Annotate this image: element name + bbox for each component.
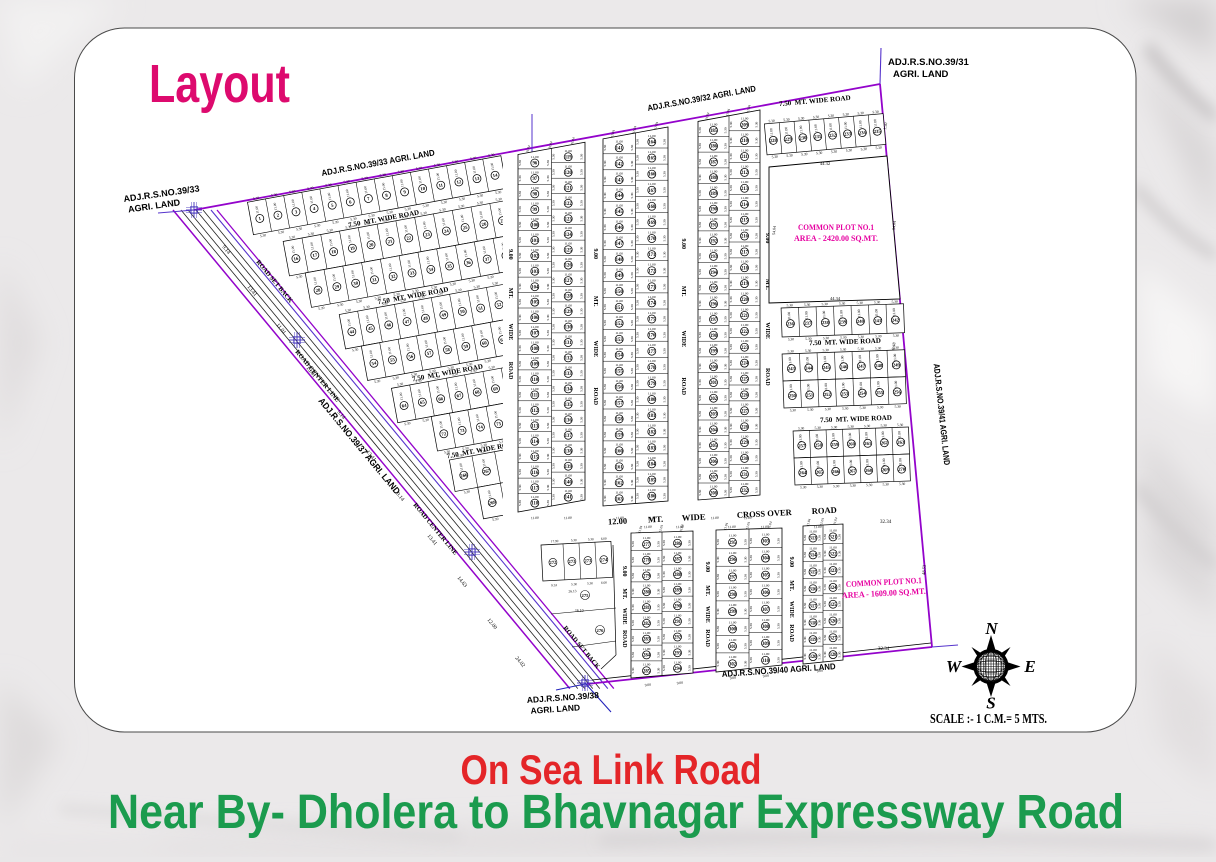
svg-text:5.30: 5.30 [656, 667, 660, 673]
svg-text:5.30: 5.30 [630, 336, 634, 342]
svg-text:5.30: 5.30 [546, 438, 550, 444]
svg-text:5.30: 5.30 [603, 448, 607, 454]
svg-text:5.30: 5.30 [858, 347, 865, 351]
svg-text:5.30: 5.30 [687, 587, 691, 593]
svg-text:108: 108 [531, 347, 539, 352]
svg-text:5.30: 5.30 [636, 203, 640, 209]
svg-text:5.30: 5.30 [603, 368, 607, 374]
svg-text:5.30: 5.30 [636, 316, 640, 322]
svg-text:136: 136 [565, 418, 573, 423]
svg-text:176: 176 [648, 334, 656, 339]
svg-text:5.30: 5.30 [579, 169, 583, 175]
svg-text:226: 226 [741, 394, 749, 399]
svg-text:5.30: 5.30 [729, 265, 733, 271]
svg-text:5.30: 5.30 [631, 541, 635, 547]
svg-text:5.30: 5.30 [579, 339, 583, 345]
svg-text:11.00: 11.00 [710, 296, 718, 300]
svg-text:11.00: 11.00 [564, 489, 572, 493]
svg-text:11.00: 11.00 [859, 382, 863, 390]
svg-text:ROAD: ROAD [507, 362, 513, 380]
svg-text:154: 154 [616, 354, 624, 359]
svg-text:WIDE: WIDE [592, 340, 598, 357]
svg-text:5.30: 5.30 [552, 277, 556, 283]
svg-text:5.30: 5.30 [579, 478, 583, 484]
svg-text:11.00: 11.00 [648, 343, 656, 347]
svg-text:5.30: 5.30 [698, 458, 702, 464]
svg-text:5.30: 5.30 [630, 240, 634, 246]
svg-text:6.00: 6.00 [601, 581, 607, 585]
svg-text:5.30: 5.30 [837, 534, 841, 540]
svg-text:5.30: 5.30 [662, 155, 666, 161]
svg-text:11.00: 11.00 [674, 645, 682, 649]
svg-text:5.30: 5.30 [662, 219, 666, 225]
svg-text:5.30: 5.30 [546, 407, 550, 413]
svg-text:11.00: 11.00 [804, 311, 808, 319]
svg-text:11.00: 11.00 [761, 525, 769, 529]
svg-text:114: 114 [531, 440, 538, 445]
svg-text:5.30: 5.30 [754, 280, 758, 286]
svg-text:5.30: 5.30 [662, 316, 666, 322]
svg-text:11.00: 11.00 [729, 655, 737, 659]
svg-text:5.30: 5.30 [546, 299, 550, 305]
svg-text:177: 177 [648, 350, 656, 355]
svg-text:5.30: 5.30 [552, 231, 556, 237]
svg-text:5.30: 5.30 [743, 539, 747, 545]
svg-text:11.00: 11.00 [648, 327, 656, 331]
svg-text:158: 158 [616, 418, 624, 423]
svg-text:11.00: 11.00 [564, 304, 572, 308]
svg-text:11.00: 11.00 [741, 419, 749, 423]
svg-text:5.30: 5.30 [723, 206, 727, 212]
svg-text:5.30: 5.30 [698, 206, 702, 212]
svg-text:165: 165 [648, 157, 656, 162]
svg-text:11.00: 11.00 [531, 201, 539, 205]
svg-text:5.30: 5.30 [698, 379, 702, 385]
svg-text:11.00: 11.00 [615, 491, 623, 495]
svg-text:5.30: 5.30 [803, 653, 807, 659]
svg-text:5.30: 5.30 [817, 603, 821, 609]
svg-text:11.00: 11.00 [762, 618, 770, 622]
svg-text:130: 130 [565, 326, 573, 331]
svg-text:103: 103 [531, 270, 539, 275]
svg-text:11.00: 11.00 [564, 180, 572, 184]
svg-text:294: 294 [674, 667, 682, 672]
svg-text:202: 202 [710, 397, 718, 402]
svg-text:5.30: 5.30 [842, 407, 849, 411]
svg-text:5.30: 5.30 [630, 464, 634, 470]
svg-text:5.30: 5.30 [662, 267, 666, 273]
svg-text:11.00: 11.00 [897, 431, 901, 439]
svg-text:5.30: 5.30 [843, 112, 850, 117]
svg-text:11.00: 11.00 [741, 291, 749, 295]
svg-text:11.00: 11.00 [531, 155, 539, 159]
svg-text:11.00: 11.00 [829, 629, 837, 633]
svg-text:11.00: 11.00 [615, 188, 623, 192]
svg-text:5.30: 5.30 [546, 237, 550, 243]
svg-text:11.00: 11.00 [564, 242, 572, 246]
svg-text:5.30: 5.30 [636, 155, 640, 161]
svg-text:11.00: 11.00 [643, 663, 651, 667]
svg-text:109: 109 [531, 363, 539, 368]
svg-text:WIDE: WIDE [682, 512, 706, 523]
svg-text:11.00: 11.00 [648, 263, 656, 267]
svg-text:5.30: 5.30 [754, 217, 758, 223]
svg-text:5.30: 5.30 [662, 396, 666, 402]
svg-text:5.30: 5.30 [518, 283, 522, 289]
svg-text:196: 196 [710, 302, 718, 307]
svg-text:246: 246 [840, 365, 848, 370]
svg-text:48.53: 48.53 [921, 564, 927, 575]
svg-text:215: 215 [741, 219, 749, 224]
svg-text:5.30: 5.30 [603, 495, 607, 501]
svg-text:120: 120 [565, 171, 573, 176]
svg-text:26.13: 26.13 [568, 589, 576, 593]
svg-text:9.00: 9.00 [704, 562, 710, 573]
svg-text:5.30: 5.30 [603, 464, 607, 470]
svg-text:11.00: 11.00 [648, 440, 656, 444]
svg-text:5.30: 5.30 [723, 458, 727, 464]
svg-text:5.30: 5.30 [662, 477, 666, 483]
svg-text:5.30: 5.30 [754, 153, 758, 159]
svg-text:121: 121 [565, 186, 573, 191]
svg-text:11.00: 11.00 [648, 424, 656, 428]
svg-text:259: 259 [831, 443, 839, 448]
svg-text:99: 99 [532, 208, 537, 213]
svg-text:146: 146 [616, 226, 624, 231]
svg-text:308: 308 [762, 625, 770, 630]
svg-text:5.30: 5.30 [571, 538, 577, 542]
svg-text:5.30: 5.30 [817, 586, 821, 592]
svg-text:229: 229 [741, 441, 749, 446]
svg-text:5.30: 5.30 [698, 426, 702, 432]
svg-text:11.00: 11.00 [805, 357, 809, 365]
svg-text:5.30: 5.30 [662, 300, 666, 306]
svg-text:5.30: 5.30 [883, 482, 890, 486]
svg-text:5.30: 5.30 [723, 237, 727, 243]
svg-text:260: 260 [848, 442, 856, 447]
svg-text:5.30: 5.30 [837, 601, 841, 607]
svg-text:131: 131 [565, 341, 573, 346]
svg-text:5.30: 5.30 [579, 277, 583, 283]
svg-text:5.30: 5.30 [630, 256, 634, 262]
svg-text:5.30: 5.30 [579, 370, 583, 376]
svg-text:141: 141 [565, 496, 573, 501]
svg-text:291: 291 [674, 620, 682, 625]
svg-text:11.00: 11.00 [741, 355, 749, 359]
svg-text:11.00: 11.00 [615, 251, 623, 255]
svg-text:5.30: 5.30 [630, 448, 634, 454]
svg-text:11.00: 11.00 [674, 551, 682, 555]
svg-text:98: 98 [532, 193, 537, 198]
svg-text:AREA - 2420.00 SQ.MT.: AREA - 2420.00 SQ.MT. [794, 233, 878, 243]
svg-text:11.00: 11.00 [531, 310, 539, 314]
svg-text:11.00: 11.00 [741, 466, 749, 470]
svg-text:11.00: 11.00 [729, 534, 737, 538]
svg-text:125: 125 [565, 248, 573, 253]
svg-text:11.00: 11.00 [762, 601, 770, 605]
svg-text:5.30: 5.30 [861, 147, 868, 152]
svg-text:5.30: 5.30 [743, 556, 747, 562]
svg-text:160: 160 [616, 449, 624, 454]
svg-text:11.00: 11.00 [615, 219, 623, 223]
svg-text:5.30: 5.30 [776, 657, 780, 663]
svg-text:5.30: 5.30 [518, 268, 522, 274]
svg-text:11.00: 11.00 [615, 315, 623, 319]
svg-text:11.00: 11.00 [789, 384, 793, 392]
svg-text:E: E [1023, 657, 1035, 676]
svg-text:168: 168 [648, 205, 656, 210]
svg-text:11.00: 11.00 [564, 319, 572, 323]
svg-text:5.30: 5.30 [723, 474, 727, 480]
svg-text:5.30: 5.30 [723, 363, 727, 369]
svg-text:11.00: 11.00 [710, 280, 718, 284]
svg-text:5.30: 5.30 [662, 203, 666, 209]
svg-text:5.30: 5.30 [552, 154, 556, 160]
svg-text:11.00: 11.00 [564, 149, 572, 153]
svg-text:115: 115 [531, 455, 538, 460]
svg-text:5.30: 5.30 [636, 235, 640, 241]
svg-text:5.30: 5.30 [636, 428, 640, 434]
svg-text:256: 256 [894, 390, 902, 395]
svg-text:44.32: 44.32 [820, 161, 830, 166]
svg-text:97: 97 [532, 177, 537, 182]
svg-text:5.30: 5.30 [603, 160, 607, 166]
svg-text:11.00: 11.00 [643, 552, 651, 556]
svg-text:148: 148 [616, 258, 624, 263]
svg-text:11.00: 11.00 [564, 381, 572, 385]
svg-text:5.30: 5.30 [860, 406, 867, 410]
svg-text:5.30: 5.30 [698, 332, 702, 338]
svg-text:11.00: 11.00 [814, 124, 819, 132]
svg-text:5.30: 5.30 [552, 215, 556, 221]
svg-text:5.30: 5.30 [723, 395, 727, 401]
svg-text:5.30: 5.30 [630, 400, 634, 406]
svg-text:11.00: 11.00 [809, 648, 817, 652]
svg-text:5.30: 5.30 [552, 324, 556, 330]
svg-text:5.30: 5.30 [729, 360, 733, 366]
svg-text:11.00: 11.00 [615, 363, 623, 367]
svg-text:11.00: 11.00 [648, 456, 656, 460]
svg-text:5.30: 5.30 [546, 484, 550, 490]
svg-text:200: 200 [710, 365, 718, 370]
svg-text:5.30: 5.30 [587, 581, 593, 585]
svg-text:5.30: 5.30 [729, 217, 733, 223]
svg-text:5.30: 5.30 [754, 312, 758, 318]
svg-text:5.30: 5.30 [552, 447, 556, 453]
svg-text:261: 261 [864, 442, 872, 447]
svg-text:5.30: 5.30 [723, 222, 727, 228]
svg-text:5.30: 5.30 [552, 478, 556, 484]
svg-text:11.00: 11.00 [643, 631, 651, 635]
svg-text:282: 282 [643, 622, 651, 627]
svg-text:217: 217 [741, 251, 749, 256]
svg-text:5.30: 5.30 [546, 392, 550, 398]
svg-text:5.30: 5.30 [729, 137, 733, 143]
svg-text:5.30: 5.30 [630, 320, 634, 326]
svg-text:5.30: 5.30 [603, 304, 607, 310]
svg-text:5.30: 5.30 [603, 272, 607, 278]
svg-text:303: 303 [762, 540, 770, 545]
svg-text:5.30: 5.30 [546, 423, 550, 429]
svg-text:5.30: 5.30 [698, 190, 702, 196]
svg-text:5.30: 5.30 [723, 285, 727, 291]
svg-text:257: 257 [798, 444, 806, 449]
svg-text:11.00: 11.00 [741, 387, 749, 391]
svg-text:11.00: 11.00 [648, 311, 656, 315]
svg-text:173: 173 [648, 285, 656, 290]
svg-text:5.30: 5.30 [749, 538, 753, 544]
svg-text:11.00: 11.00 [798, 434, 802, 442]
svg-text:263: 263 [897, 441, 905, 446]
svg-text:11.00: 11.00 [615, 299, 623, 303]
svg-text:205: 205 [710, 444, 718, 449]
svg-text:193: 193 [710, 255, 718, 260]
svg-text:5.30: 5.30 [754, 487, 758, 493]
svg-text:5.30: 5.30 [823, 618, 827, 624]
svg-text:227: 227 [741, 409, 749, 414]
svg-text:5.30: 5.30 [837, 618, 841, 624]
svg-text:5.30: 5.30 [723, 190, 727, 196]
svg-text:5.30: 5.30 [518, 314, 522, 320]
svg-text:194: 194 [710, 271, 718, 276]
svg-text:5.30: 5.30 [803, 569, 807, 575]
svg-text:5.30: 5.30 [546, 160, 550, 166]
svg-text:11.00: 11.00 [799, 125, 804, 133]
svg-text:5.30: 5.30 [518, 423, 522, 429]
svg-text:9.00: 9.00 [507, 249, 513, 260]
svg-text:5.30: 5.30 [579, 262, 583, 268]
svg-text:5.30: 5.30 [749, 555, 753, 561]
svg-text:269: 269 [882, 468, 890, 473]
svg-text:11.00: 11.00 [531, 495, 539, 499]
svg-text:119: 119 [565, 155, 572, 160]
svg-text:5.30: 5.30 [864, 424, 871, 428]
svg-text:5.30: 5.30 [729, 312, 733, 318]
svg-text:245: 245 [823, 366, 831, 371]
svg-text:11.00: 11.00 [762, 533, 770, 537]
svg-text:191: 191 [710, 224, 718, 229]
svg-text:11.00: 11.00 [564, 195, 572, 199]
svg-text:5.30: 5.30 [754, 233, 758, 239]
svg-text:11.00: 11.00 [531, 449, 539, 453]
svg-text:11.00: 11.00 [710, 201, 718, 205]
svg-text:5.30: 5.30 [662, 634, 666, 640]
svg-text:5.30: 5.30 [743, 608, 747, 614]
svg-text:11.00: 11.00 [824, 383, 828, 391]
svg-text:5.30: 5.30 [631, 557, 635, 563]
svg-text:220: 220 [741, 298, 749, 303]
svg-text:5.30: 5.30 [817, 535, 821, 541]
svg-text:11.00: 11.00 [710, 170, 718, 174]
svg-text:292: 292 [674, 636, 682, 641]
svg-text:11.00: 11.00 [615, 283, 623, 287]
svg-text:11.00: 11.00 [710, 343, 718, 347]
svg-text:5.30: 5.30 [662, 665, 666, 671]
svg-text:5.30: 5.30 [579, 494, 583, 500]
svg-text:5.30: 5.30 [729, 201, 733, 207]
svg-text:MT.: MT. [621, 588, 627, 599]
svg-text:11.00: 11.00 [864, 432, 868, 440]
svg-text:11.00: 11.00 [858, 355, 862, 363]
svg-text:5.30: 5.30 [875, 346, 882, 350]
svg-text:5.30: 5.30 [546, 206, 550, 212]
svg-text:5.30: 5.30 [729, 487, 733, 493]
svg-text:32.34: 32.34 [880, 520, 892, 525]
svg-text:11.00: 11.00 [729, 603, 737, 607]
svg-text:5.30: 5.30 [636, 445, 640, 451]
svg-text:11.00: 11.00 [615, 331, 623, 335]
svg-text:11.00: 11.00 [728, 525, 736, 529]
svg-text:157: 157 [616, 402, 624, 407]
svg-text:5.30: 5.30 [603, 240, 607, 246]
svg-text:11.00: 11.00 [741, 371, 749, 375]
svg-text:5.30: 5.30 [630, 368, 634, 374]
svg-text:164: 164 [648, 141, 656, 146]
svg-text:5.30: 5.30 [716, 556, 720, 562]
svg-text:5.30: 5.30 [823, 550, 827, 556]
svg-text:5.30: 5.30 [817, 653, 821, 659]
svg-text:293: 293 [674, 651, 682, 656]
svg-text:11.00: 11.00 [741, 133, 749, 137]
svg-text:5.30: 5.30 [552, 169, 556, 175]
svg-text:11.00: 11.00 [564, 226, 572, 230]
svg-text:268: 268 [865, 469, 873, 474]
svg-text:5.30: 5.30 [631, 652, 635, 658]
svg-text:265: 265 [816, 470, 824, 475]
svg-text:284: 284 [643, 654, 651, 659]
svg-text:11.00: 11.00 [729, 638, 737, 642]
svg-text:5.30: 5.30 [662, 571, 666, 577]
svg-text:11.00: 11.00 [710, 154, 718, 158]
svg-text:11.00: 11.00 [809, 597, 817, 601]
svg-text:5.30: 5.30 [546, 268, 550, 274]
svg-text:5.30: 5.30 [749, 657, 753, 663]
svg-text:11.00: 11.00 [531, 372, 539, 376]
svg-text:204: 204 [710, 428, 718, 433]
svg-text:5.30: 5.30 [698, 285, 702, 291]
svg-text:5.30: 5.30 [579, 308, 583, 314]
svg-text:11.00: 11.00 [531, 341, 539, 345]
svg-text:11.00: 11.00 [564, 211, 572, 215]
svg-text:235: 235 [874, 130, 882, 136]
svg-text:11.00: 11.00 [829, 579, 837, 583]
svg-text:5.30: 5.30 [723, 379, 727, 385]
svg-text:189: 189 [710, 192, 718, 197]
svg-text:11.00: 11.00 [829, 562, 837, 566]
svg-text:5.30: 5.30 [800, 485, 807, 489]
svg-text:230: 230 [741, 457, 749, 462]
svg-text:5.30: 5.30 [552, 401, 556, 407]
svg-text:5.30: 5.30 [729, 153, 733, 159]
svg-text:5.30: 5.30 [552, 355, 556, 361]
svg-text:5.30: 5.30 [603, 145, 607, 151]
svg-text:184: 184 [648, 463, 656, 468]
svg-text:11.00: 11.00 [832, 460, 836, 468]
svg-text:275: 275 [582, 593, 590, 598]
svg-text:5.30: 5.30 [518, 392, 522, 398]
svg-text:5.30: 5.30 [846, 148, 853, 153]
svg-text:WIDE: WIDE [788, 601, 794, 618]
svg-text:11.00: 11.00 [762, 652, 770, 656]
svg-text:11.00: 11.00 [806, 384, 810, 392]
svg-text:280: 280 [643, 590, 651, 595]
svg-text:11.00: 11.00 [710, 138, 718, 142]
svg-text:5.30: 5.30 [630, 352, 634, 358]
svg-text:54.04: 54.04 [891, 221, 897, 230]
svg-text:137: 137 [565, 434, 573, 439]
svg-text:11.00: 11.00 [710, 217, 718, 221]
svg-text:11.00: 11.00 [898, 458, 902, 466]
